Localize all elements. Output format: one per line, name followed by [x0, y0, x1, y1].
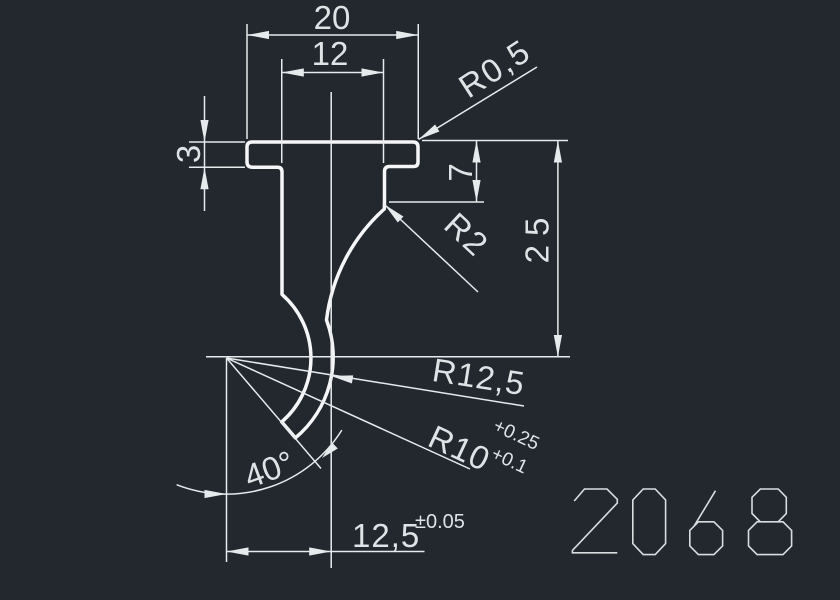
svg-text:±0.05: ±0.05: [415, 511, 465, 533]
svg-text:12,5: 12,5: [352, 517, 420, 554]
svg-text:20: 20: [314, 0, 351, 36]
svg-text:7: 7: [442, 163, 479, 181]
svg-text:25: 25: [519, 209, 556, 264]
svg-text:12: 12: [312, 35, 349, 72]
svg-text:3: 3: [170, 145, 207, 163]
